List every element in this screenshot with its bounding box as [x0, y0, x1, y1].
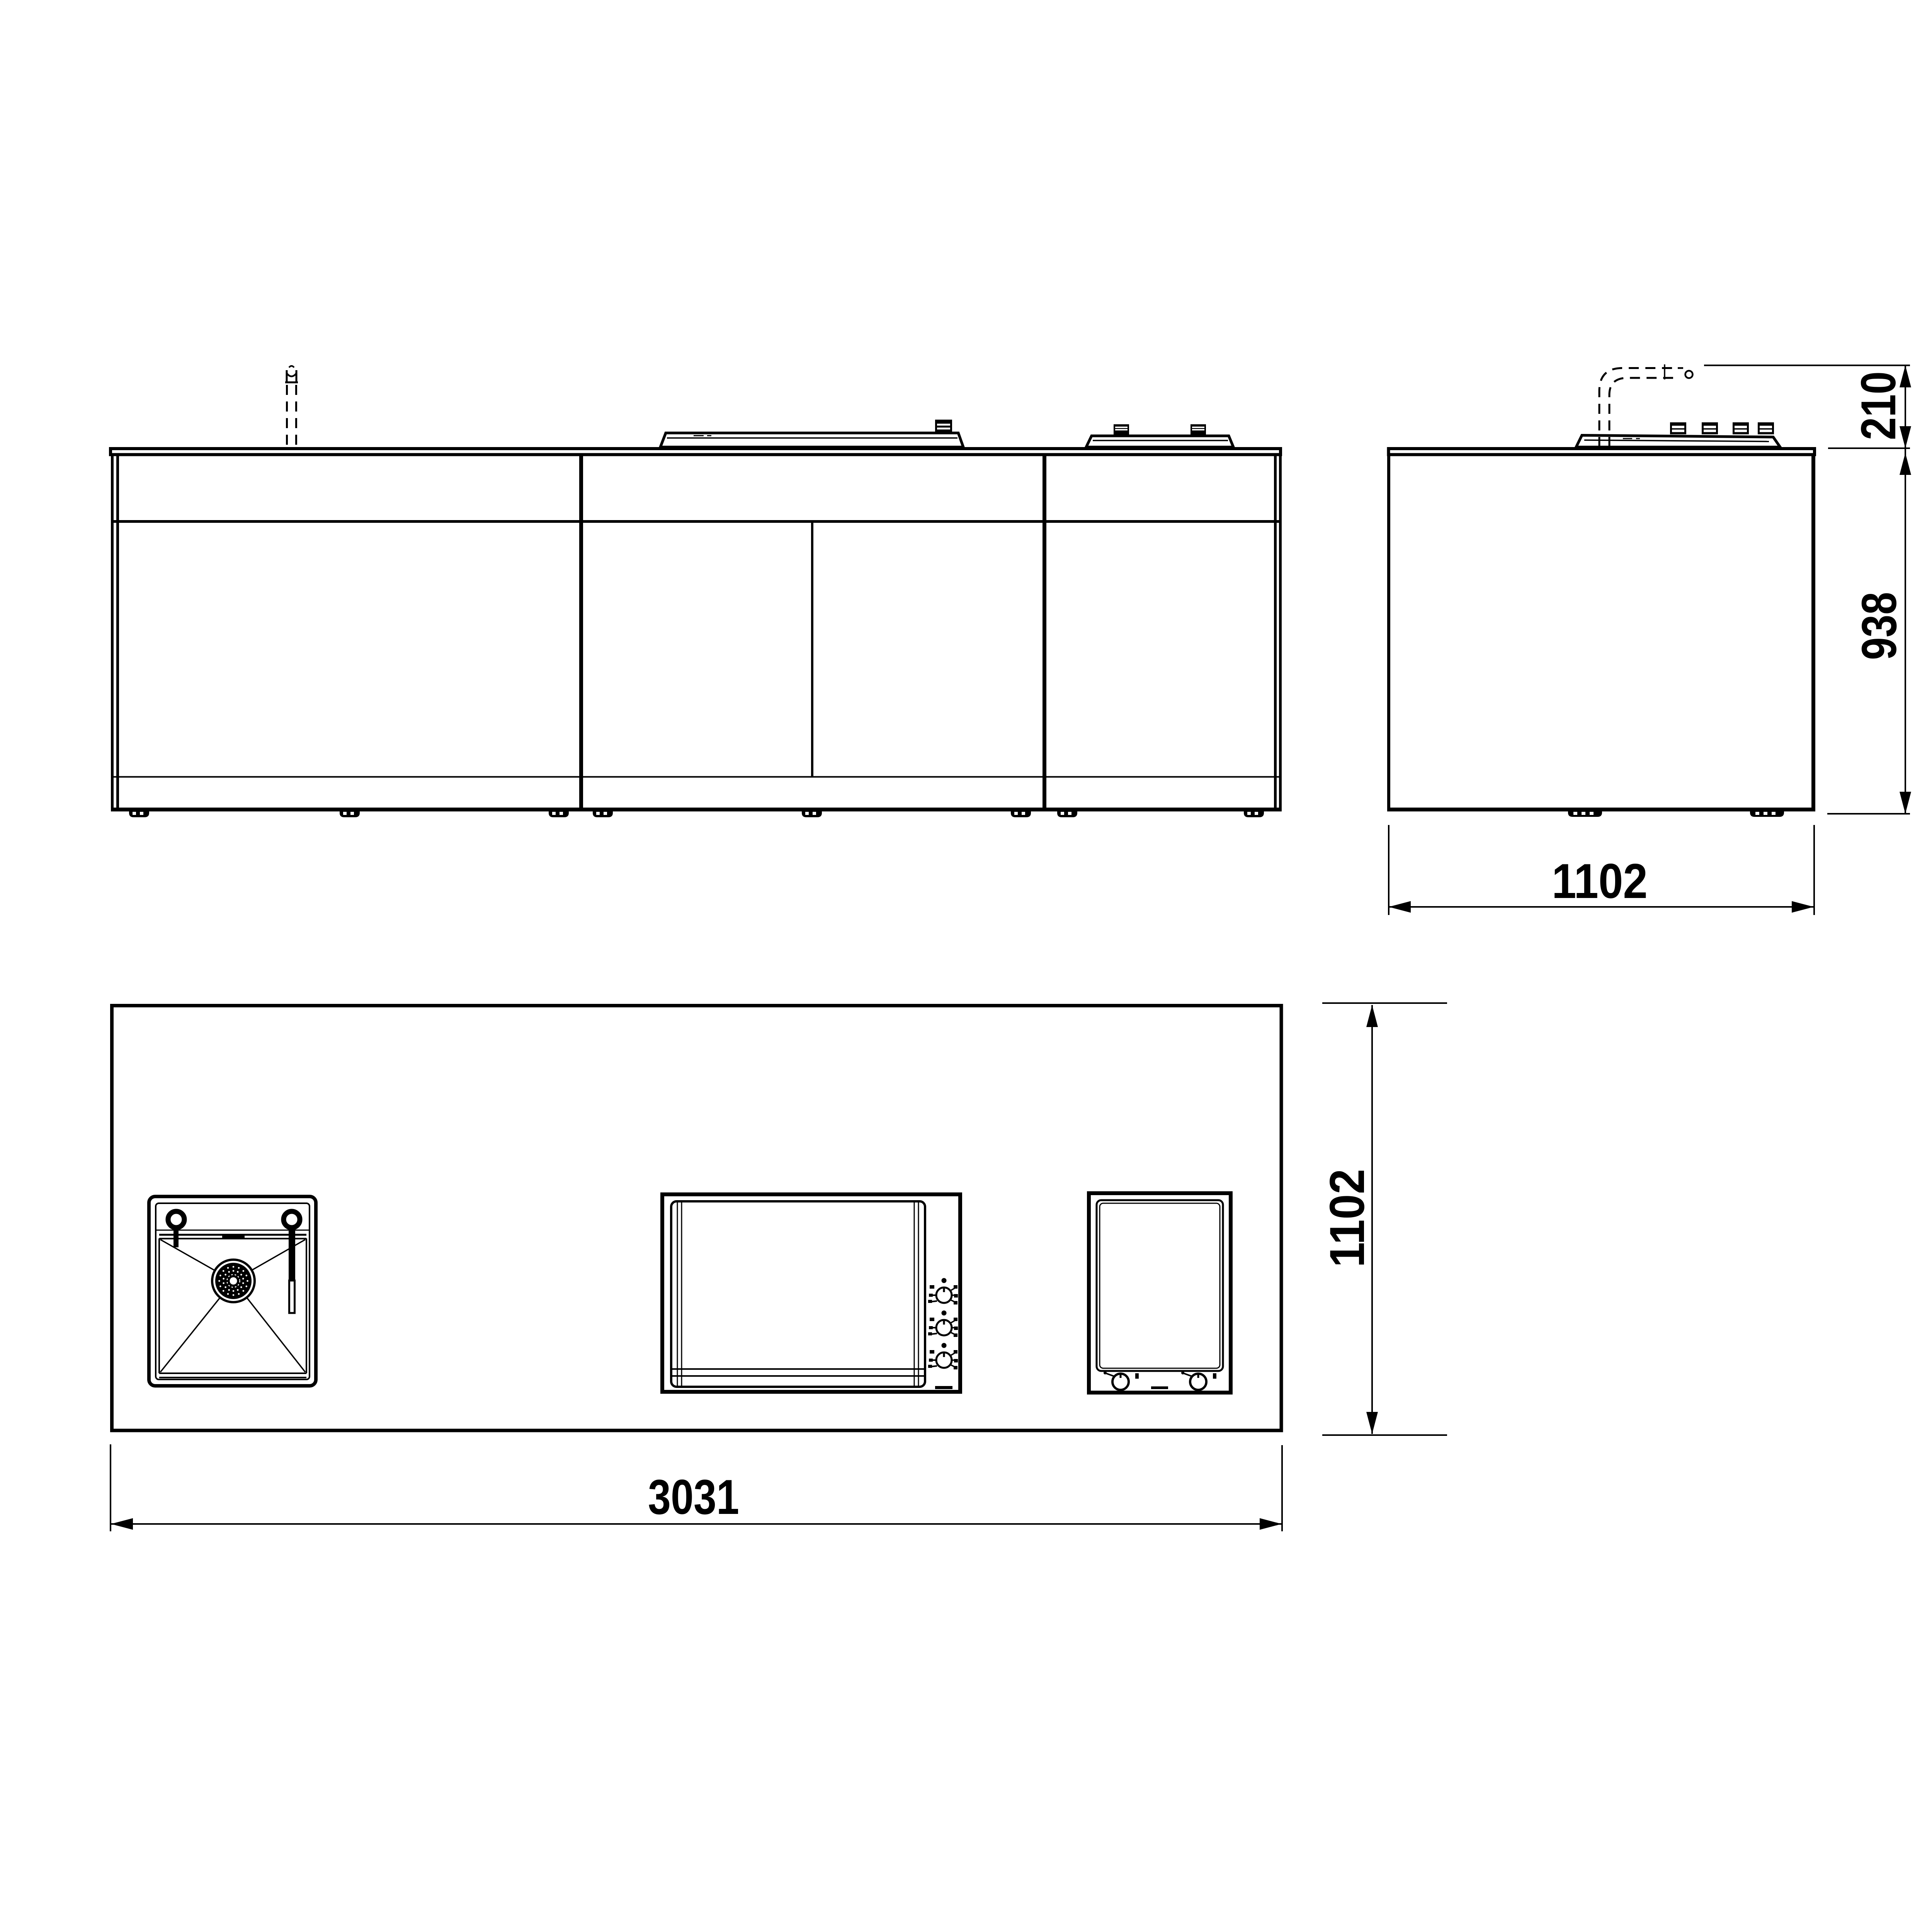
svg-text:3031: 3031 — [648, 1469, 739, 1524]
svg-text:1102: 1102 — [1320, 1169, 1374, 1267]
svg-text:1102: 1102 — [1552, 854, 1648, 908]
svg-text:938: 938 — [1852, 592, 1906, 660]
svg-text:210: 210 — [1851, 371, 1906, 440]
